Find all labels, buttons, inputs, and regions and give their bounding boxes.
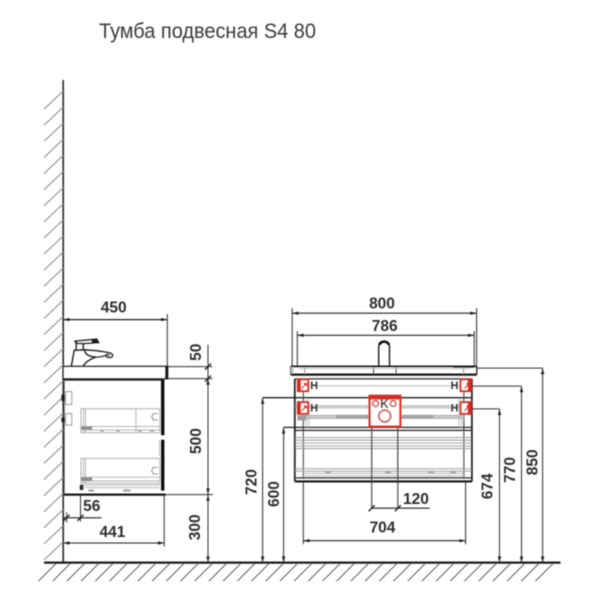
- svg-text:850: 850: [524, 449, 541, 475]
- svg-text:450: 450: [101, 299, 127, 316]
- svg-text:770: 770: [502, 457, 519, 483]
- svg-text:674: 674: [479, 473, 496, 499]
- svg-text:704: 704: [370, 520, 396, 537]
- svg-text:600: 600: [266, 481, 283, 507]
- svg-text:786: 786: [372, 318, 398, 335]
- svg-text:500: 500: [188, 428, 205, 454]
- svg-text:Тумба подвесная S4 80: Тумба подвесная S4 80: [99, 19, 316, 43]
- svg-text:800: 800: [369, 296, 395, 313]
- svg-text:300: 300: [187, 514, 204, 540]
- svg-text:H: H: [310, 402, 318, 414]
- svg-text:50: 50: [188, 344, 205, 361]
- svg-text:720: 720: [243, 469, 260, 495]
- svg-text:H: H: [451, 402, 459, 414]
- svg-text:120: 120: [403, 491, 429, 508]
- svg-text:441: 441: [99, 524, 125, 541]
- svg-text:56: 56: [83, 498, 101, 515]
- svg-text:H: H: [451, 380, 459, 392]
- svg-text:H: H: [310, 380, 318, 392]
- svg-text:K: K: [380, 397, 389, 411]
